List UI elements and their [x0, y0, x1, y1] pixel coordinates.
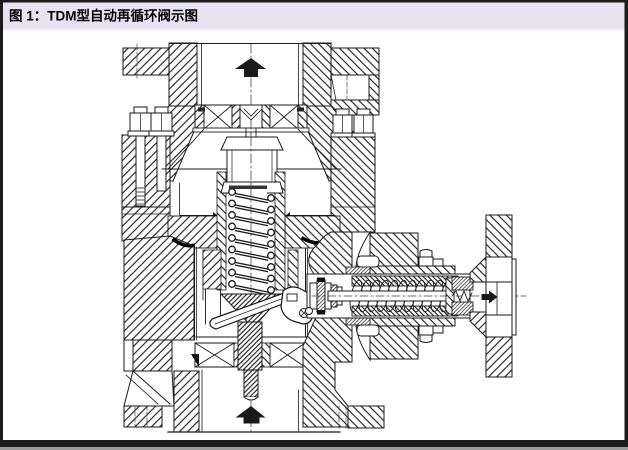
svg-text:图 1：TDM型自动再循环阀示图: 图 1：TDM型自动再循环阀示图	[9, 8, 198, 24]
